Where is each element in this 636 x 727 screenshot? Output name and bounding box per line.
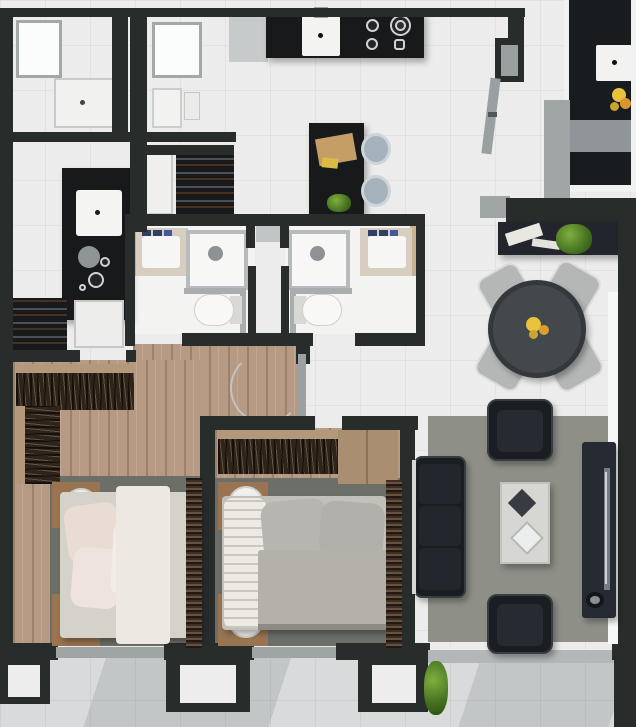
sofa-cushion-3 — [419, 548, 461, 590]
neighbor-fruit-3 — [610, 102, 619, 111]
sofa-cushion-2 — [419, 506, 461, 546]
bathroom2-sink — [368, 236, 406, 268]
floor-plan-stage — [0, 0, 636, 727]
dining-fruit-3 — [529, 330, 538, 339]
left-unit-bookshelf — [5, 298, 67, 352]
wall-top — [0, 8, 525, 17]
kitchen-fridge — [229, 13, 268, 62]
wall-bathrooms-mid-left — [248, 266, 256, 336]
wall-bathrooms-mid-right — [281, 266, 289, 336]
bathroom2-toilet — [302, 294, 342, 326]
cooktop-burner-3 — [366, 38, 378, 50]
island-stool-1 — [361, 133, 391, 165]
entry-door-handle — [488, 112, 497, 117]
sofa-cushion-1 — [419, 464, 461, 504]
wall-bathroom-stub-1 — [246, 214, 255, 248]
bedroom2-wardrobe — [218, 430, 338, 474]
entry-stub-inner — [501, 45, 518, 76]
bathroom2-shower-head — [310, 246, 325, 261]
armchair-top-cushion — [497, 410, 543, 452]
wall-bathroom-stub-2 — [280, 214, 289, 248]
wall-bathrooms-left — [125, 214, 135, 346]
dining-fruit-2 — [539, 325, 549, 335]
left-unit-burner-1 — [78, 246, 100, 268]
wall-left-outer — [0, 8, 13, 658]
bathroom2-toiletry-1 — [368, 230, 377, 236]
wall-left-unit-separator — [130, 16, 147, 232]
sideboard-plant — [556, 224, 592, 254]
wall-bathrooms-bottom-1 — [125, 333, 135, 346]
tv-screen-highlight — [605, 472, 607, 584]
bedroom2-duvet-fold — [258, 624, 388, 630]
neighbor-sink-drain — [612, 60, 617, 65]
balcony-pillar-2-inner — [180, 665, 236, 703]
island-food-item — [322, 157, 339, 169]
left-unit-burner-2 — [100, 257, 110, 267]
wall-bathrooms-bottom-2 — [182, 333, 313, 346]
island-stool-2 — [361, 175, 391, 207]
tv-console — [582, 442, 616, 618]
wall-bathrooms-right — [416, 214, 425, 346]
window-sill-2 — [252, 647, 338, 658]
cooktop-burner-4 — [394, 39, 405, 50]
wall-bedrooms-shared — [200, 416, 215, 648]
console-speaker-inner — [590, 596, 600, 604]
balcony-shadow-right — [458, 656, 631, 727]
wall-bedroom2-top-1 — [203, 416, 315, 430]
balcony-plant — [424, 661, 448, 715]
left-unit-burner-3 — [88, 272, 104, 288]
kitchen-sink-drain — [318, 33, 323, 38]
right-bathroom-fixture-small — [184, 92, 200, 120]
wall-bathrooms-top — [133, 214, 425, 226]
storage-shelf-dark — [176, 152, 234, 216]
wall-top-left-divider — [112, 16, 128, 134]
right-bathroom-window — [152, 22, 202, 78]
bedroom1-runner — [186, 478, 202, 648]
parapet-ledge-v — [544, 100, 570, 200]
bathroom1-sink — [142, 236, 180, 268]
bedroom2-dresser — [338, 430, 398, 484]
island-plant — [327, 194, 351, 212]
left-unit-burner-4 — [79, 284, 86, 291]
bedroom1-wardrobe-side — [16, 406, 60, 484]
balcony-pillar-4 — [614, 656, 636, 727]
bedroom1-wood-strip — [13, 478, 53, 646]
neighbor-kitchen-shelf — [569, 120, 631, 152]
bathroom2-toiletry-3 — [390, 230, 398, 236]
balcony-pillar-1-inner — [8, 665, 40, 697]
neighbor-fruit-2 — [620, 98, 631, 109]
wall-right-outer — [618, 222, 636, 660]
bedroom2-runner — [386, 480, 402, 648]
bathroom1-toiletry-2 — [153, 230, 162, 236]
balcony-pillar-3-inner — [372, 665, 416, 703]
wall-bedroom1-top-2 — [126, 350, 136, 362]
wall-storage-top — [130, 145, 234, 155]
window-sill-1 — [56, 647, 166, 658]
left-bathroom-window — [16, 20, 62, 78]
cooktop-burner-2-inner — [395, 20, 406, 31]
wall-dining-top — [506, 198, 636, 222]
hall-door-arc — [230, 352, 302, 424]
bedroom1-duvet — [116, 486, 170, 644]
wall-bathrooms-bottom-4 — [416, 333, 425, 346]
wall-bedroom1-top-1 — [0, 350, 80, 362]
armchair-bottom-cushion — [497, 604, 543, 646]
bedroom1-wardrobe-top — [16, 364, 134, 410]
bedroom2-dresser-divider — [366, 430, 368, 484]
cooktop-burner-1 — [366, 19, 379, 32]
right-bathroom-fixture — [152, 88, 182, 128]
bathroom2-toiletry-2 — [379, 230, 388, 236]
left-unit-cabinet — [74, 300, 124, 348]
sofa-chrome-edge — [412, 460, 416, 594]
bathroom1-toiletry-3 — [164, 230, 172, 236]
left-unit-faucet-dot — [95, 210, 100, 215]
left-bathroom-faucet-dot — [80, 100, 85, 105]
wall-bathrooms-bottom-3 — [355, 333, 416, 346]
bathroom1-toilet — [194, 294, 234, 326]
wall-left-unit-bottom — [0, 132, 236, 142]
bedroom2-duvet — [258, 550, 388, 630]
bathroom1-shower-head — [208, 246, 223, 261]
